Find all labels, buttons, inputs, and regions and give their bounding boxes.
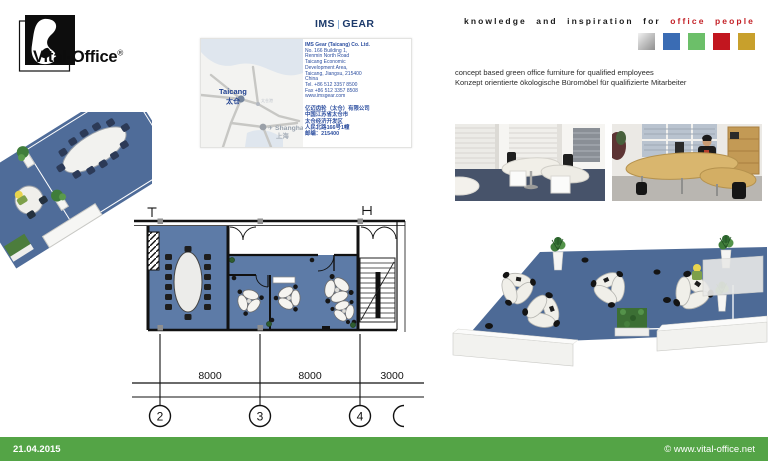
brand-name: Vital-Office [33,48,117,66]
port-marker [256,102,260,106]
palette-square-silver [638,33,655,50]
headline: concept based green office furniture for… [455,68,686,88]
tagline-accent: office people [670,16,755,26]
shanghai-label-cn: 上海 [276,131,289,140]
executive-figure [692,264,702,280]
palette-square-blue [663,33,680,50]
floor-plan: 8000 8000 3000 2 3 4 [132,198,424,430]
survey-ticks [148,206,372,217]
headline-en: concept based green office furniture for… [455,68,686,78]
shanghai-marker [260,124,267,131]
tagline-prefix: knowledge and inspiration for [464,16,661,26]
footer-date: 21.04.2015 [13,444,61,455]
palette-square-gold [738,33,755,50]
grid-bubbles [150,406,405,427]
plane-icon: ✈ [268,125,273,132]
grid-bubble-partial [394,406,405,427]
grid-bubble-3: 3 [257,410,264,424]
location-map: Taicang 太仓 太仓港 ✈ Shanghai 上海 [201,39,303,147]
contact-cn-line: 邮编：215400 [305,131,409,137]
gear-text: GEAR [342,18,374,30]
render-meeting-room [0,112,152,277]
palette-square-red [713,33,730,50]
logo-separator [338,20,340,29]
grid-bubble-2: 2 [157,410,164,424]
registered-mark: ® [117,49,123,58]
port-label: 太仓港 [261,97,273,103]
dim-label-2: 8000 [298,370,322,382]
contact-block: IMS Gear (Taicang) Co. Ltd. No. 166 Buil… [305,43,409,138]
ims-text: IMS [315,18,335,30]
photo-office-white [455,124,605,201]
palette-squares [638,33,755,50]
tagline: knowledge and inspiration for office peo… [464,16,755,26]
page: Vital-Office® IMS GEAR knowledge and ins… [0,0,768,461]
hedge-planter [615,308,649,336]
taicang-label-cn: 太仓 [226,97,241,106]
hatched-column [148,232,159,270]
stairs [360,258,395,322]
footer-copyright: © www.vital-office.net [664,444,755,455]
dim-label-3: 3000 [380,370,404,382]
footer-bar: 21.04.2015 © www.vital-office.net [0,437,768,461]
render-open-office: 720.0m² [445,230,768,378]
headline-de: Konzept orientierte ökologische Büromöbe… [455,78,686,88]
palette-square-green [688,33,705,50]
ims-gear-logo: IMS GEAR [315,18,374,30]
taicang-label: Taicang [219,87,247,96]
shanghai-label: Shanghai [275,125,303,132]
vital-office-logo-text: Vital-Office® [33,48,123,67]
dim-label-1: 8000 [198,370,222,382]
photo-office-wood [612,124,762,201]
grid-bubble-4: 4 [357,410,364,424]
